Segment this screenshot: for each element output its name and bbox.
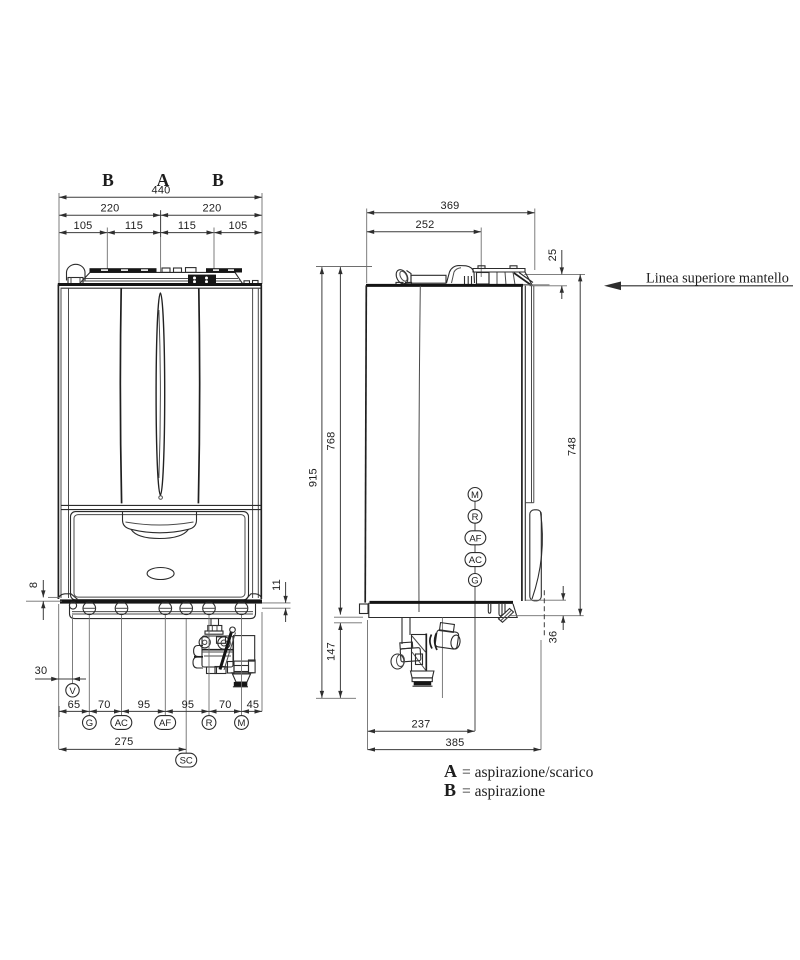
svg-text:SC: SC (180, 756, 193, 767)
svg-text:70: 70 (98, 699, 111, 711)
svg-text:220: 220 (101, 203, 120, 215)
svg-text:A: A (444, 761, 457, 781)
svg-text:95: 95 (182, 699, 195, 711)
svg-text:768: 768 (326, 432, 338, 451)
svg-text:R: R (472, 512, 479, 523)
svg-text:252: 252 (416, 219, 435, 231)
svg-text:369: 369 (441, 200, 460, 212)
svg-text:AC: AC (115, 718, 128, 729)
svg-text:AF: AF (469, 533, 481, 544)
svg-text:M: M (238, 718, 246, 729)
svg-text:R: R (206, 718, 213, 729)
svg-text:G: G (86, 718, 93, 729)
svg-text:= aspirazione: = aspirazione (462, 783, 545, 800)
svg-text:B: B (102, 170, 114, 190)
svg-text:915: 915 (308, 468, 320, 487)
svg-text:= aspirazione/scarico: = aspirazione/scarico (462, 764, 594, 781)
svg-text:45: 45 (247, 699, 260, 711)
svg-text:M: M (471, 490, 479, 501)
svg-text:115: 115 (178, 220, 196, 232)
svg-text:B: B (444, 780, 456, 800)
svg-text:105: 105 (74, 220, 93, 232)
svg-text:237: 237 (412, 719, 431, 731)
svg-text:Linea superiore mantello: Linea superiore mantello (646, 271, 789, 287)
svg-text:G: G (471, 576, 478, 587)
svg-text:105: 105 (229, 220, 248, 232)
svg-text:70: 70 (219, 699, 232, 711)
svg-text:95: 95 (138, 699, 151, 711)
svg-text:8: 8 (28, 582, 40, 588)
svg-text:11: 11 (271, 579, 283, 591)
svg-text:AF: AF (159, 718, 171, 729)
svg-text:30: 30 (35, 665, 48, 677)
svg-text:385: 385 (446, 737, 465, 749)
svg-text:B: B (212, 170, 224, 190)
svg-text:440: 440 (152, 184, 171, 196)
svg-text:275: 275 (115, 736, 134, 748)
svg-text:AC: AC (469, 555, 482, 566)
svg-text:36: 36 (548, 631, 560, 644)
svg-text:147: 147 (326, 642, 338, 661)
svg-text:220: 220 (203, 203, 222, 215)
svg-text:65: 65 (68, 699, 81, 711)
svg-text:115: 115 (125, 220, 143, 232)
svg-text:748: 748 (566, 437, 578, 456)
svg-text:V: V (69, 686, 76, 697)
svg-text:25: 25 (547, 249, 559, 262)
